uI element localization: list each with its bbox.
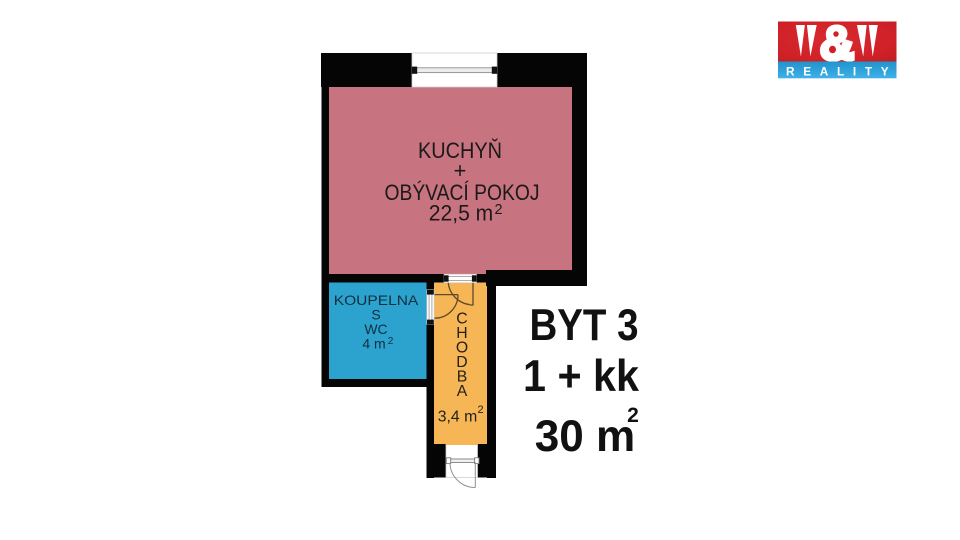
svg-text:2: 2 — [494, 202, 502, 218]
svg-text:3,4 m: 3,4 m — [438, 409, 478, 426]
svg-text:A: A — [457, 383, 468, 400]
svg-text:22,5 m: 22,5 m — [429, 201, 494, 226]
svg-text:2: 2 — [477, 404, 483, 416]
svg-text:BYT 3: BYT 3 — [530, 301, 639, 350]
svg-text:2: 2 — [388, 336, 394, 347]
svg-text:1 + kk: 1 + kk — [523, 352, 639, 401]
svg-text:4 m: 4 m — [362, 336, 385, 352]
svg-text:REALITY: REALITY — [786, 64, 897, 78]
svg-text:&: & — [820, 17, 853, 69]
svg-text:2: 2 — [627, 404, 639, 427]
svg-text:30 m: 30 m — [535, 412, 636, 461]
